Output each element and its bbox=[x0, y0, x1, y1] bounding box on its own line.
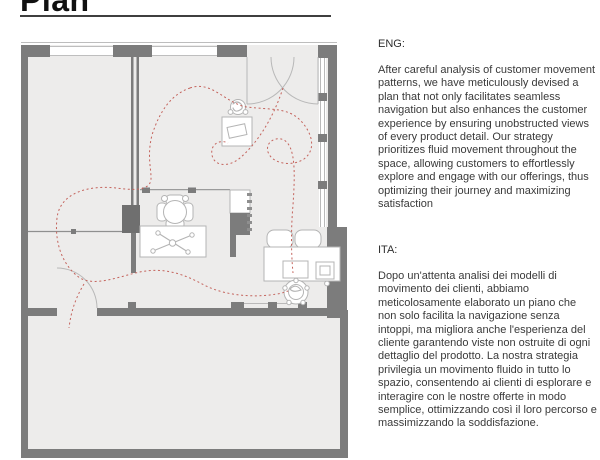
page: Plan bbox=[0, 0, 600, 460]
display-stand bbox=[222, 117, 252, 146]
ita-paragraph: Dopo un'attenta analisi dei modelli di m… bbox=[378, 270, 597, 431]
eng-section: ENG: After careful analysis of customer … bbox=[378, 38, 597, 211]
window-mullion bbox=[318, 181, 327, 189]
display-table-crossed-tools bbox=[140, 226, 206, 257]
right-window-strip bbox=[318, 58, 327, 227]
round-table bbox=[164, 201, 187, 224]
eng-paragraph: After careful analysis of customer movem… bbox=[378, 64, 597, 211]
ita-section: ITA: Dopo un'attenta analisi dei modelli… bbox=[378, 244, 597, 431]
window-mullion bbox=[318, 93, 327, 101]
guest-chair bbox=[267, 230, 293, 248]
guest-chair bbox=[295, 230, 321, 248]
ita-label: ITA: bbox=[378, 244, 597, 256]
wall-pier bbox=[122, 205, 140, 233]
window-mullion bbox=[318, 134, 327, 142]
sill-block bbox=[231, 302, 244, 308]
sill-block bbox=[268, 302, 277, 308]
desk-paper bbox=[283, 261, 308, 278]
eng-label: ENG: bbox=[378, 38, 597, 50]
